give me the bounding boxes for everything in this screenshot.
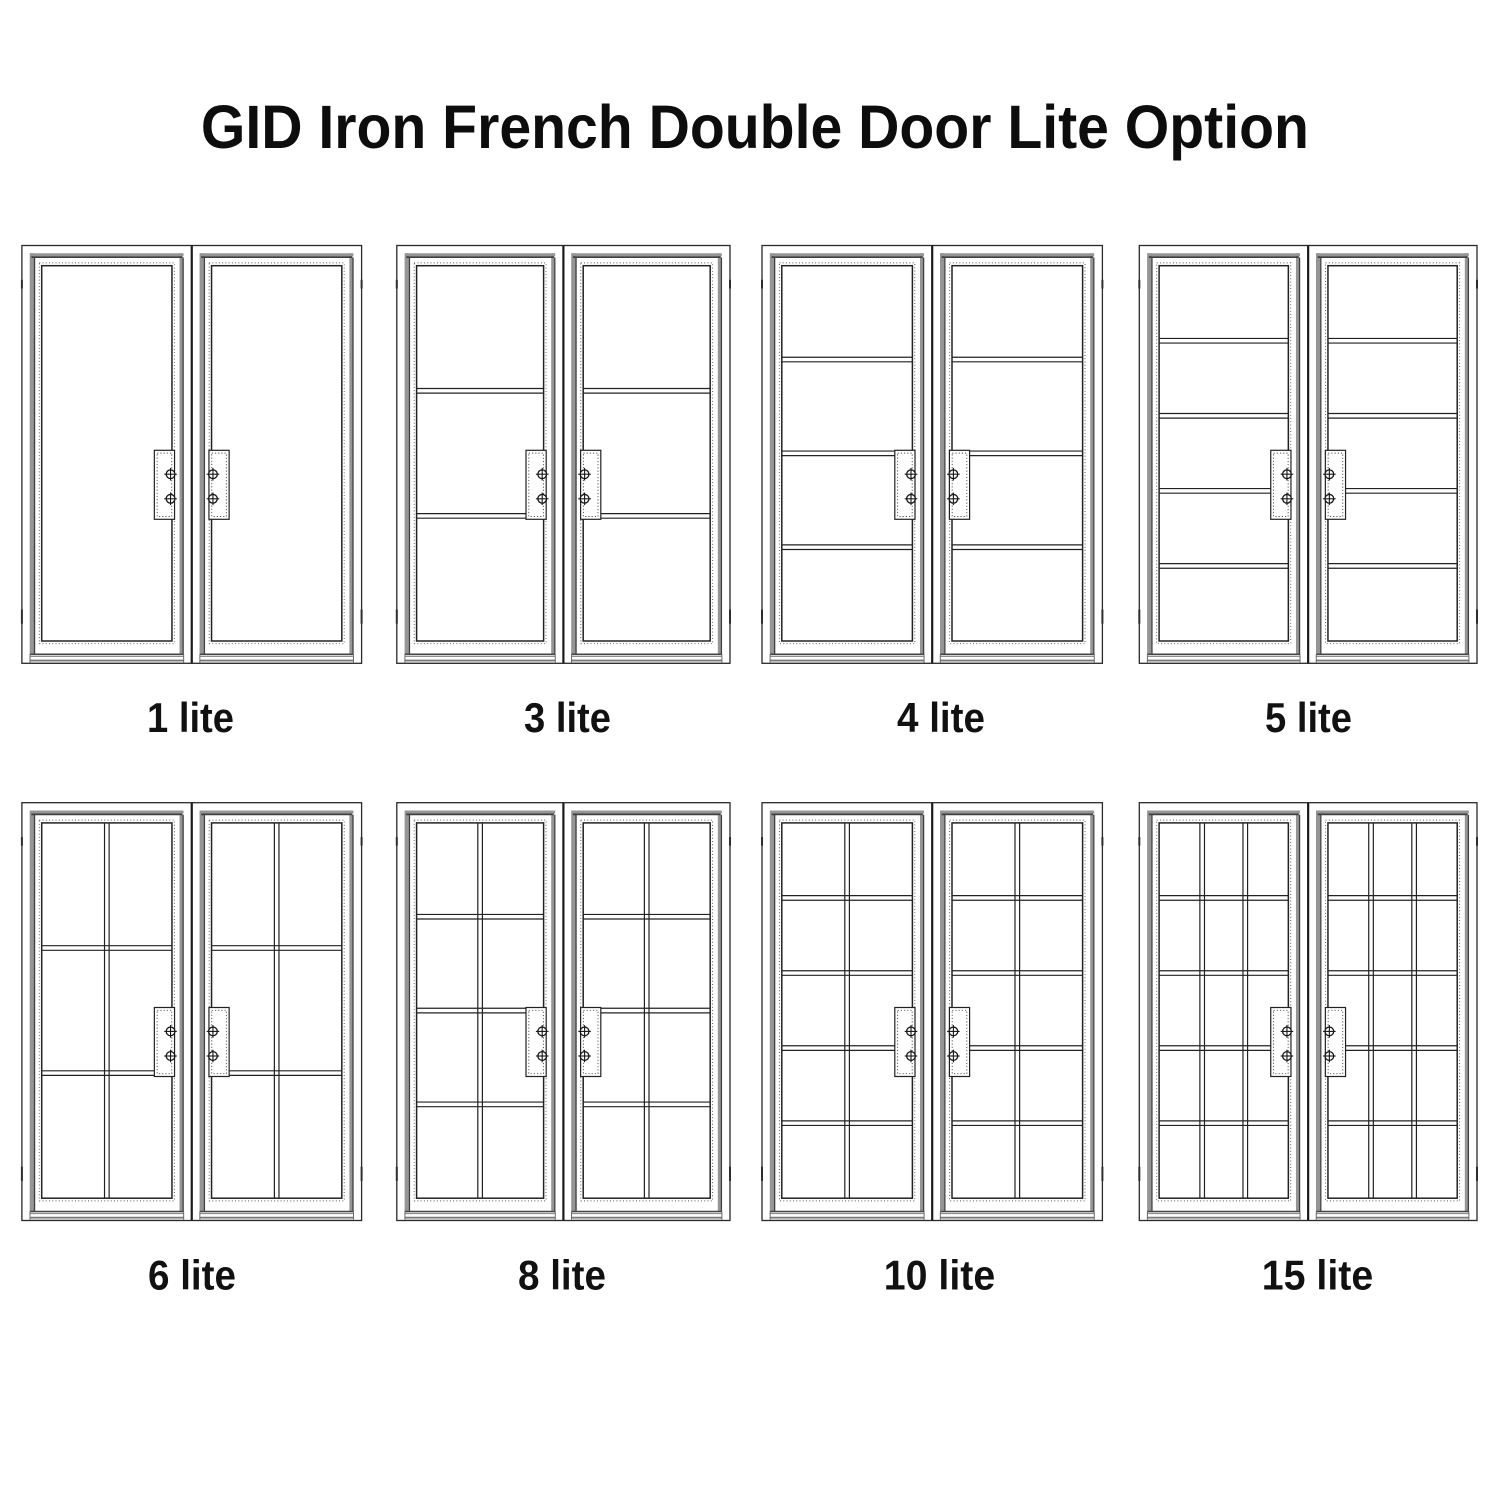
svg-text:6 lite: 6 lite [148,1252,236,1299]
svg-text:3 lite: 3 lite [524,694,611,741]
svg-text:15 lite: 15 lite [1262,1252,1374,1299]
svg-text:1 lite: 1 lite [147,694,234,741]
svg-text:8 lite: 8 lite [518,1252,606,1299]
svg-text:GID Iron French Double Door Li: GID Iron French Double Door Lite Option [201,93,1309,162]
svg-text:5 lite: 5 lite [1265,694,1352,741]
svg-text:4 lite: 4 lite [897,694,985,741]
svg-text:10 lite: 10 lite [884,1252,996,1299]
